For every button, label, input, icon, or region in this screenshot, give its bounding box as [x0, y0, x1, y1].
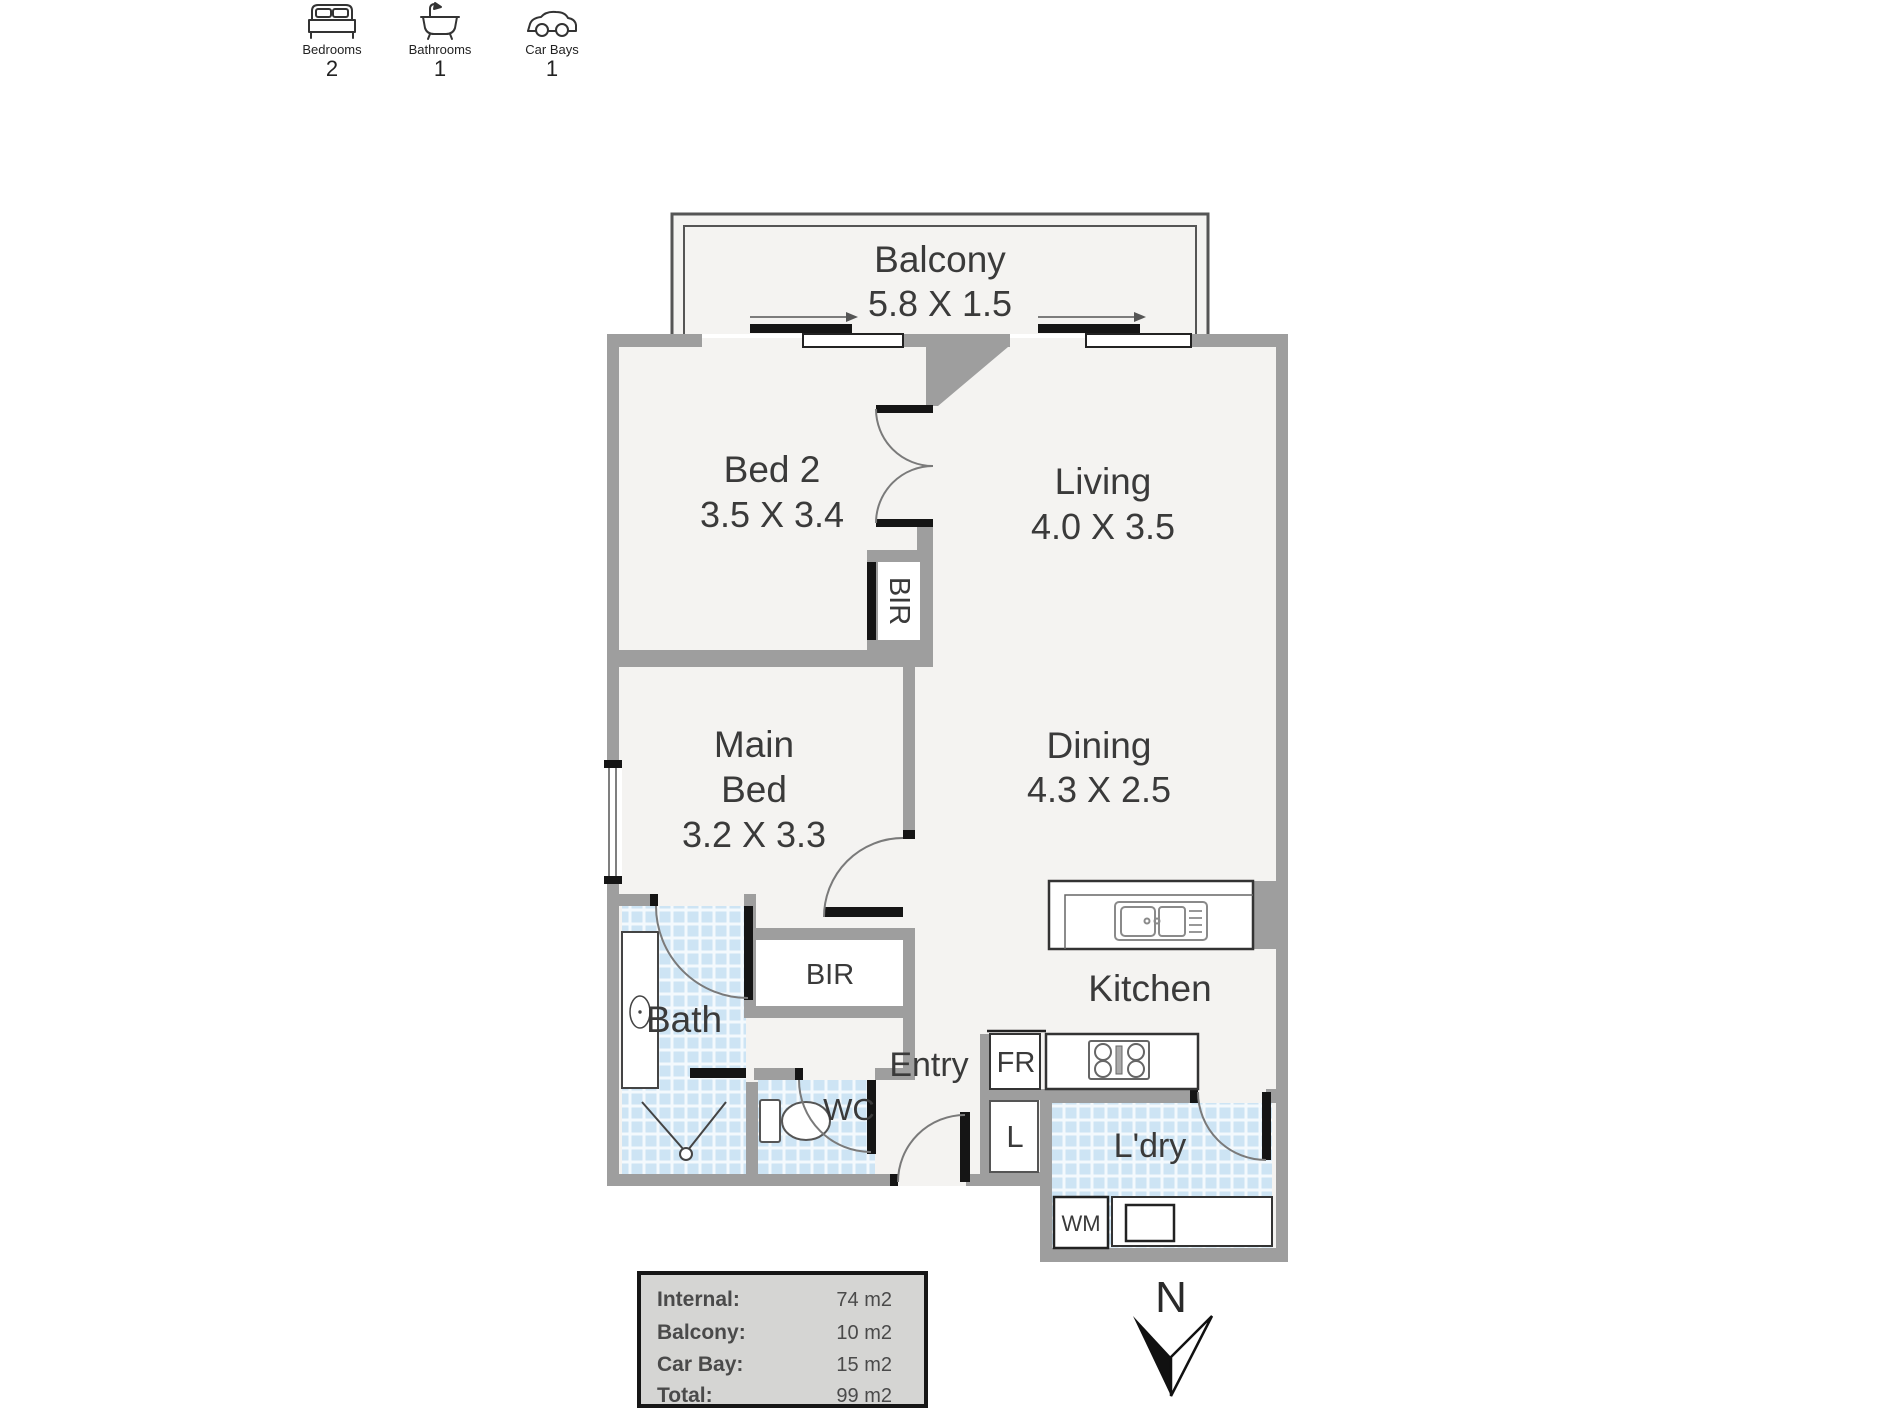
bir2-front	[867, 562, 876, 640]
wall-island-connector	[1253, 881, 1281, 949]
label-mainbed-1: Main	[714, 724, 794, 765]
car-icon	[528, 12, 576, 36]
wc-door-jamb	[795, 1068, 803, 1080]
label-bir-mainbed: BIR	[806, 959, 854, 991]
area-row-label: Internal:	[657, 1288, 740, 1311]
dims-balcony: 5.8 X 1.5	[868, 283, 1012, 324]
dims-dining: 4.3 X 2.5	[1027, 769, 1171, 810]
wall-laundry-bottom	[1040, 1248, 1288, 1262]
wall-below-linen	[992, 1172, 1040, 1186]
label-fridge: FR	[997, 1047, 1036, 1079]
shower-screen	[690, 1068, 746, 1078]
dims-living: 4.0 X 3.5	[1031, 506, 1175, 547]
slide-panel-right-fixed	[1038, 324, 1140, 333]
label-washing-machine: WM	[1061, 1211, 1100, 1236]
wall-top-right	[1191, 334, 1288, 347]
wall-fr-linen	[992, 1089, 1040, 1100]
dims-mainbed: 3.2 X 3.3	[682, 814, 826, 855]
label-mainbed-2: Bed	[721, 769, 787, 810]
area-row-label: Balcony:	[657, 1321, 746, 1344]
label-entry: Entry	[889, 1046, 968, 1084]
area-row-value: 99 m2	[836, 1385, 892, 1407]
mainbed-door-jamb	[903, 830, 915, 839]
north-arrow-left-half	[1133, 1316, 1171, 1396]
label-bir-bed2: BIR	[883, 577, 915, 625]
wall-bottom-left	[607, 1174, 898, 1186]
wall-mainbed-divider	[903, 667, 915, 838]
label-bath: Bath	[646, 999, 722, 1040]
bedrooms-label: Bedrooms	[302, 42, 362, 57]
bathrooms-count: 1	[434, 56, 446, 81]
stove-bench	[1046, 1034, 1198, 1089]
label-dining: Dining	[1047, 725, 1152, 766]
label-bed2: Bed 2	[724, 449, 821, 490]
carbays-count: 1	[546, 56, 558, 81]
area-row-label: Total:	[657, 1384, 713, 1407]
area-row-label: Car Bay:	[657, 1353, 743, 1376]
north-arrow: N	[1133, 1273, 1212, 1396]
bathrooms-label: Bathrooms	[409, 42, 472, 57]
floorplan-svg: Bedrooms 2 Bathrooms 1 Car Bays 1	[0, 0, 1900, 1425]
label-linen: L	[1006, 1119, 1023, 1154]
toilet-icon	[760, 1100, 830, 1142]
north-label: N	[1155, 1273, 1187, 1322]
slide-panel-left-moving	[803, 334, 903, 347]
summary-labels: Bedrooms 2 Bathrooms 1 Car Bays 1	[302, 42, 579, 81]
slide-panel-left-fixed	[750, 324, 852, 333]
bath-door-jamb	[650, 894, 658, 906]
area-row-value: 10 m2	[836, 1322, 892, 1344]
wall-laundry-top	[1052, 1089, 1198, 1103]
sink-icon	[1115, 902, 1207, 940]
area-row-value: 15 m2	[836, 1354, 892, 1376]
area-table: Internal: 74 m2 Balcony: 10 m2 Car Bay: …	[639, 1273, 926, 1407]
north-arrow-right-half	[1171, 1316, 1212, 1396]
kitchen-island	[1049, 881, 1253, 949]
carbays-label: Car Bays	[525, 42, 579, 57]
floorplan-page: Bedrooms 2 Bathrooms 1 Car Bays 1	[0, 0, 1900, 1425]
label-balcony: Balcony	[874, 239, 1006, 280]
wall-bed2-bottom	[607, 650, 933, 667]
bedrooms-count: 2	[326, 56, 338, 81]
laundry-tub	[1126, 1205, 1174, 1241]
wall-laundry-left	[1040, 1089, 1052, 1262]
mainbed-window	[604, 760, 622, 884]
wall-right	[1276, 334, 1288, 1262]
area-row-value: 74 m2	[836, 1289, 892, 1311]
slide-panel-right-moving	[1086, 334, 1191, 347]
basin-drain	[638, 1010, 641, 1013]
label-kitchen: Kitchen	[1088, 968, 1211, 1009]
laundry-door-jamb	[1190, 1089, 1198, 1103]
dims-bed2: 3.5 X 3.4	[700, 494, 844, 535]
entry-door-jamb	[890, 1174, 898, 1186]
wall-shower-wc	[746, 1082, 758, 1174]
label-living: Living	[1055, 461, 1152, 502]
bed-icon	[309, 5, 355, 38]
label-laundry: L'dry	[1114, 1127, 1187, 1165]
summary-icons	[309, 3, 576, 39]
wall-bed2-divider	[917, 523, 933, 553]
label-wc: WC	[823, 1092, 875, 1127]
wall-top-left	[607, 334, 702, 347]
wall-top-mid	[903, 334, 1010, 347]
bathtub-icon	[421, 3, 459, 39]
